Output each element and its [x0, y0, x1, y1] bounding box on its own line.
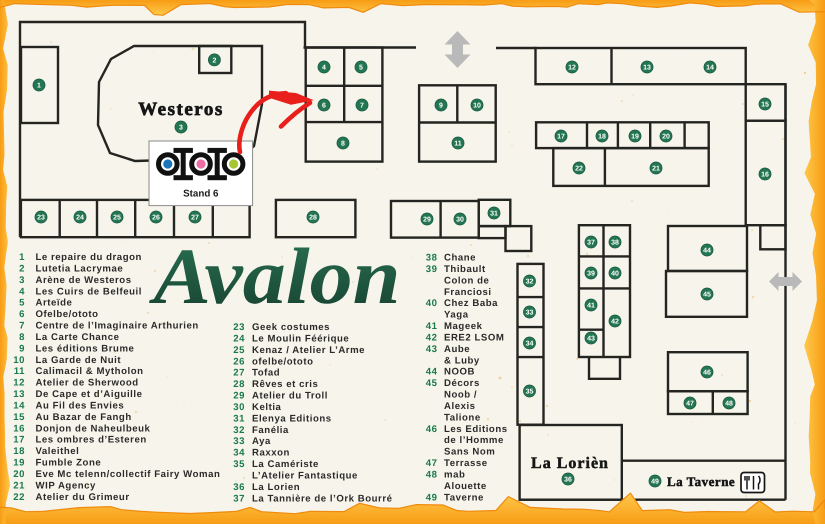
svg-text:33: 33 — [526, 310, 534, 317]
svg-text:33: 33 — [233, 436, 245, 447]
svg-text:26: 26 — [152, 215, 160, 222]
svg-text:21: 21 — [13, 480, 25, 491]
svg-text:23: 23 — [37, 215, 45, 222]
svg-text:Rêves et cris: Rêves et cris — [252, 379, 318, 390]
svg-text:Colon de: Colon de — [444, 275, 489, 286]
svg-text:25: 25 — [233, 345, 245, 356]
svg-text:La Tannière de l’Ork Bourré: La Tannière de l’Ork Bourré — [252, 493, 393, 504]
svg-text:Aube: Aube — [444, 344, 470, 355]
svg-text:1: 1 — [37, 83, 41, 90]
svg-text:Talione: Talione — [444, 412, 481, 423]
svg-text:Noob /: Noob / — [444, 390, 477, 401]
svg-text:23: 23 — [233, 322, 245, 333]
svg-text:Les ombres d’Esteren: Les ombres d’Esteren — [36, 435, 147, 446]
svg-text:Le repaire du dragon: Le repaire du dragon — [36, 252, 142, 263]
svg-text:Atelier du Grimeur: Atelier du Grimeur — [36, 492, 130, 503]
svg-text:Au Bazar de Fangh: Au Bazar de Fangh — [36, 412, 132, 423]
svg-text:34: 34 — [233, 448, 245, 459]
svg-text:Arène de Westeros: Arène de Westeros — [36, 275, 132, 286]
svg-text:Mageek: Mageek — [444, 321, 483, 332]
svg-text:30: 30 — [456, 217, 464, 224]
svg-text:14: 14 — [706, 65, 714, 72]
svg-text:Chane: Chane — [444, 253, 476, 264]
svg-text:19: 19 — [13, 458, 25, 469]
svg-text:Au Fil des Envies: Au Fil des Envies — [36, 401, 125, 412]
svg-text:28: 28 — [233, 379, 245, 390]
svg-text:12: 12 — [568, 65, 576, 72]
svg-text:L’Atelier Fantastique: L’Atelier Fantastique — [252, 471, 358, 482]
svg-text:18: 18 — [598, 134, 606, 141]
svg-text:16: 16 — [761, 172, 769, 179]
svg-text:41: 41 — [587, 303, 595, 310]
svg-text:27: 27 — [233, 368, 245, 379]
svg-text:Tofad: Tofad — [252, 368, 280, 379]
svg-text:42: 42 — [611, 319, 619, 326]
svg-text:36: 36 — [233, 482, 245, 493]
svg-text:7: 7 — [360, 103, 364, 110]
svg-text:10: 10 — [473, 103, 481, 110]
svg-text:Atelier du Troll: Atelier du Troll — [252, 391, 328, 402]
svg-text:48: 48 — [725, 401, 733, 408]
svg-text:45: 45 — [426, 378, 438, 389]
svg-text:Raxxon: Raxxon — [252, 448, 290, 459]
svg-text:36: 36 — [564, 477, 572, 484]
svg-text:16: 16 — [13, 423, 25, 434]
svg-text:42: 42 — [426, 332, 438, 343]
svg-text:41: 41 — [426, 321, 438, 332]
svg-text:43: 43 — [587, 336, 595, 343]
svg-text:Yaga: Yaga — [444, 310, 469, 321]
svg-text:Fanélia: Fanélia — [252, 425, 289, 436]
svg-text:Franciosi: Franciosi — [444, 287, 492, 298]
svg-text:Chez Baba: Chez Baba — [444, 298, 498, 309]
svg-text:39: 39 — [587, 271, 595, 278]
svg-text:43: 43 — [426, 344, 438, 355]
svg-text:19: 19 — [631, 134, 639, 141]
svg-text:Valeithel: Valeithel — [36, 446, 80, 457]
svg-text:9: 9 — [439, 103, 443, 110]
svg-text:38: 38 — [611, 240, 619, 247]
svg-text:13: 13 — [643, 65, 651, 72]
svg-text:45: 45 — [703, 292, 711, 299]
svg-text:40: 40 — [611, 271, 619, 278]
svg-text:47: 47 — [686, 401, 694, 408]
svg-text:30: 30 — [233, 402, 245, 413]
svg-text:25: 25 — [113, 215, 121, 222]
svg-text:37: 37 — [233, 493, 245, 504]
svg-text:37: 37 — [587, 240, 595, 247]
svg-text:Le Moulin Féérique: Le Moulin Féérique — [252, 333, 349, 344]
svg-text:40: 40 — [426, 298, 438, 309]
svg-text:2: 2 — [19, 263, 25, 274]
svg-text:4: 4 — [19, 286, 25, 297]
svg-text:Centre de l’Imaginaire Arthuri: Centre de l’Imaginaire Arthurien — [36, 321, 199, 332]
svg-text:27: 27 — [191, 215, 199, 222]
svg-text:Stand 6: Stand 6 — [183, 189, 219, 200]
svg-text:31: 31 — [233, 413, 245, 424]
svg-text:La Lorien: La Lorien — [252, 482, 300, 493]
svg-text:Ofelbe/ototo: Ofelbe/ototo — [36, 309, 99, 320]
svg-text:8: 8 — [19, 332, 25, 343]
svg-text:Arteïde: Arteïde — [36, 298, 73, 309]
svg-text:32: 32 — [233, 425, 245, 436]
svg-text:Kenaz / Atelier L’Arme: Kenaz / Atelier L’Arme — [252, 345, 365, 356]
svg-text:10: 10 — [13, 355, 25, 366]
svg-text:12: 12 — [13, 378, 25, 389]
svg-text:La Garde de Nuit: La Garde de Nuit — [36, 355, 122, 366]
svg-text:WIP Agency: WIP Agency — [36, 480, 97, 491]
svg-text:11: 11 — [14, 366, 25, 377]
svg-text:Thibault: Thibault — [444, 264, 486, 275]
svg-text:22: 22 — [13, 492, 25, 503]
svg-text:39: 39 — [426, 264, 438, 275]
svg-text:3: 3 — [179, 125, 183, 132]
svg-text:31: 31 — [490, 211, 498, 218]
svg-text:21: 21 — [652, 166, 660, 173]
svg-text:ofelbe/ototo: ofelbe/ototo — [252, 356, 314, 367]
svg-text:35: 35 — [526, 389, 534, 396]
svg-text:22: 22 — [575, 166, 583, 173]
svg-text:20: 20 — [13, 469, 25, 480]
svg-text:Westeros: Westeros — [138, 99, 224, 120]
svg-text:17: 17 — [13, 435, 25, 446]
svg-text:Les éditions Brume: Les éditions Brume — [36, 343, 135, 354]
svg-text:11: 11 — [454, 141, 462, 148]
svg-text:49: 49 — [651, 479, 659, 486]
svg-text:9: 9 — [19, 343, 25, 354]
svg-text:mab: mab — [444, 470, 465, 481]
svg-text:de l’Homme: de l’Homme — [444, 435, 504, 446]
svg-text:Aya: Aya — [252, 436, 271, 447]
svg-text:Calimacil & Mytholon: Calimacil & Mytholon — [36, 366, 144, 377]
svg-text:35: 35 — [233, 459, 245, 470]
svg-text:Avalon: Avalon — [148, 233, 400, 321]
svg-text:20: 20 — [662, 134, 670, 141]
svg-text:La Carte Chance: La Carte Chance — [36, 332, 120, 343]
svg-text:34: 34 — [526, 341, 534, 348]
svg-text:46: 46 — [703, 370, 711, 377]
svg-text:Les Cuirs de Belfeuil: Les Cuirs de Belfeuil — [36, 286, 142, 297]
svg-text:49: 49 — [426, 492, 438, 503]
svg-text:Geek costumes: Geek costumes — [252, 322, 330, 333]
svg-text:47: 47 — [426, 458, 438, 469]
svg-text:7: 7 — [19, 321, 25, 332]
svg-text:18: 18 — [13, 446, 25, 457]
svg-text:Les Editions: Les Editions — [444, 424, 508, 435]
svg-text:3: 3 — [19, 275, 25, 286]
svg-text:24: 24 — [76, 215, 84, 222]
svg-text:6: 6 — [19, 309, 25, 320]
svg-text:8: 8 — [341, 141, 345, 148]
svg-text:Atelier de Sherwood: Atelier de Sherwood — [36, 378, 139, 389]
svg-text:1: 1 — [19, 252, 25, 263]
svg-text:Keltia: Keltia — [252, 402, 282, 413]
svg-text:26: 26 — [233, 356, 245, 367]
svg-text:48: 48 — [426, 470, 438, 481]
svg-text:ERE2 LSOM: ERE2 LSOM — [444, 332, 504, 343]
svg-text:46: 46 — [426, 424, 438, 435]
svg-text:NOOB: NOOB — [444, 367, 475, 378]
svg-text:De Cape et d’Aiguille: De Cape et d’Aiguille — [36, 389, 143, 400]
svg-text:Alouette: Alouette — [444, 481, 487, 492]
svg-text:17: 17 — [557, 134, 565, 141]
svg-text:5: 5 — [359, 65, 363, 72]
svg-text:La Camériste: La Camériste — [252, 459, 319, 470]
svg-text:Sans Nom: Sans Nom — [444, 447, 495, 458]
svg-text:Taverne: Taverne — [444, 492, 484, 503]
svg-text:15: 15 — [13, 412, 25, 423]
svg-text:Lutetia Lacrymae: Lutetia Lacrymae — [36, 263, 124, 274]
svg-text:29: 29 — [233, 391, 245, 402]
svg-text:38: 38 — [426, 253, 438, 264]
svg-text:28: 28 — [309, 215, 317, 222]
svg-text:Donjon de Naheulbeuk: Donjon de Naheulbeuk — [36, 423, 151, 434]
svg-text:Elenya Editions: Elenya Editions — [252, 413, 332, 424]
svg-text:& Luby: & Luby — [444, 355, 480, 366]
svg-text:Terrasse: Terrasse — [444, 458, 488, 469]
svg-text:24: 24 — [233, 333, 245, 344]
svg-text:15: 15 — [761, 102, 769, 109]
svg-text:14: 14 — [13, 401, 25, 412]
svg-text:Fumble Zone: Fumble Zone — [36, 458, 102, 469]
svg-text:La Lorièn: La Lorièn — [531, 455, 609, 472]
svg-text:13: 13 — [13, 389, 25, 400]
svg-text:Décors: Décors — [444, 378, 480, 389]
svg-text:6: 6 — [322, 103, 326, 110]
svg-text:La Taverne: La Taverne — [667, 474, 735, 489]
svg-text:44: 44 — [703, 248, 711, 255]
svg-text:2: 2 — [212, 58, 216, 65]
svg-text:32: 32 — [526, 279, 534, 286]
svg-text:5: 5 — [19, 298, 25, 309]
svg-text:Eve Mc telenn/collectif Fairy: Eve Mc telenn/collectif Fairy Woman — [36, 469, 221, 480]
svg-text:29: 29 — [423, 217, 431, 224]
svg-text:Alexis: Alexis — [444, 401, 476, 412]
svg-text:4: 4 — [322, 65, 326, 72]
svg-text:44: 44 — [426, 367, 438, 378]
